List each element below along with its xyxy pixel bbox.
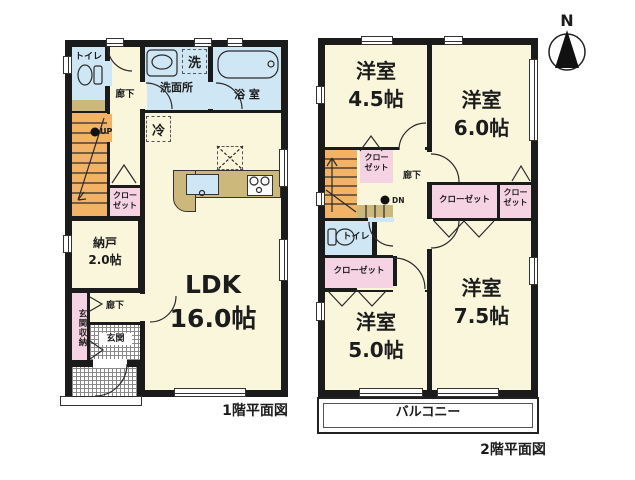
entrance-label-1f: 玄関 [99, 333, 132, 345]
window-1f-right-ldk-a [279, 149, 288, 187]
room75-label-line2: 7.5帖 [454, 304, 509, 328]
room75-label: 洋室 7.5帖 [432, 274, 531, 330]
hall-upper-1f [110, 47, 140, 185]
hall-label-2f: 廊下 [392, 170, 432, 182]
toilet-step-1f [72, 100, 105, 111]
closet-b-label-2f: クロー ゼット [500, 188, 531, 209]
closet-label-line1: クロー [113, 191, 137, 200]
porch-step-1f [60, 396, 142, 406]
window-2f-top-45 [361, 36, 393, 45]
room50-label-line2: 5.0帖 [348, 338, 403, 362]
bath-label-1f: 浴 室 [213, 88, 281, 103]
window-2f-top-60 [444, 36, 463, 45]
window-1f-top-bath [227, 38, 243, 47]
laundry-label: 洗 [188, 52, 201, 71]
stairs-2f [325, 150, 357, 218]
washroom-label-1f: 洗面所 [145, 81, 208, 96]
compass-north-label: N [556, 10, 578, 32]
door-gap-50 [393, 286, 425, 293]
room45-label-line1: 洋室 [356, 59, 396, 83]
window-1f-right-ldk-b [279, 239, 288, 281]
door-gap-ldk [138, 294, 147, 321]
door-gap-45 [399, 146, 425, 151]
closet-b-label-line2: ゼット [504, 198, 528, 207]
laundry-box: 洗 [182, 49, 207, 74]
room-ldk-1f [145, 113, 281, 390]
window-1f-top-hall [106, 38, 124, 47]
hall-upper-label-1f: 廊下 [108, 89, 142, 102]
entrance-storage-label-1f: 玄関収納 [73, 298, 87, 358]
hall-lower-label-1f: 廊下 [92, 300, 138, 312]
window-2f-left-45 [316, 86, 325, 104]
floor2-caption: 2階平面図 [458, 441, 568, 460]
door-gap-75 [426, 219, 433, 249]
window-2f-bottom-50 [359, 388, 423, 397]
storage-label-1f: 納戸 2.0帖 [72, 235, 138, 270]
window-1f-left-toilet [63, 56, 72, 74]
room45-label-line2: 4.5帖 [348, 87, 403, 111]
room50-label-line1: 洋室 [356, 310, 396, 334]
closet-c-label-2f: クローゼット [325, 266, 393, 277]
wall-patch-d [357, 255, 393, 258]
door-gap-entrance [93, 359, 127, 368]
room75-label-line1: 洋室 [462, 276, 502, 300]
window-1f-left-storage [63, 235, 72, 253]
door-gap-toilet-2f [368, 217, 394, 222]
porch-1f [72, 367, 137, 397]
room50-label: 洋室 5.0帖 [325, 308, 427, 364]
storage-label-line1: 納戸 [93, 236, 117, 250]
stairs-dn-label: DN [392, 196, 410, 206]
floor1-caption: 1階平面図 [200, 402, 310, 421]
closet-b-label-line1: クロー [504, 188, 528, 197]
closet-a-label-line2: ゼット [365, 163, 389, 172]
closet-a-label-2f: クロー ゼット [360, 153, 393, 174]
storage-label-line2: 2.0帖 [88, 253, 121, 267]
ldk-label-line2: 16.0帖 [170, 304, 257, 333]
closet-a-label-line1: クロー [365, 153, 389, 162]
ldk-label: LDK 16.0帖 [148, 268, 278, 336]
ldk-label-line1: LDK [185, 270, 241, 299]
closet-wide-label-2f: クローゼット [432, 195, 497, 206]
stairs-up-label: UP [100, 127, 118, 138]
compass-icon [549, 30, 585, 70]
wall-patch-c [393, 256, 397, 290]
room60-label-line2: 6.0帖 [454, 116, 509, 140]
balcony-label: バルコニー [318, 404, 538, 422]
toilet-label-2f: トイレ [338, 231, 374, 243]
window-2f-bottom-75 [437, 388, 499, 397]
window-1f-bottom-ldk [174, 388, 246, 397]
window-2f-left-50 [316, 302, 325, 321]
fridge-box: 冷 [146, 116, 171, 142]
kitchen-sink [186, 174, 219, 195]
window-1f-top-washroom [194, 38, 212, 47]
door-gap-toilet-1f [103, 61, 112, 86]
table-box [217, 146, 243, 170]
window-2f-left-stairs [316, 192, 325, 206]
toilet-label-1f: トイレ [72, 51, 105, 63]
room60-label-line1: 洋室 [462, 88, 502, 112]
floorplan-canvas: 洗 冷 [0, 0, 635, 480]
room45-label: 洋室 4.5帖 [325, 57, 427, 113]
closet-label-1f: クロー ゼット [110, 191, 140, 212]
room60-label: 洋室 6.0帖 [432, 86, 531, 142]
fridge-label: 冷 [152, 120, 165, 139]
closet-label-line2: ゼット [113, 201, 137, 210]
stove [247, 175, 273, 196]
